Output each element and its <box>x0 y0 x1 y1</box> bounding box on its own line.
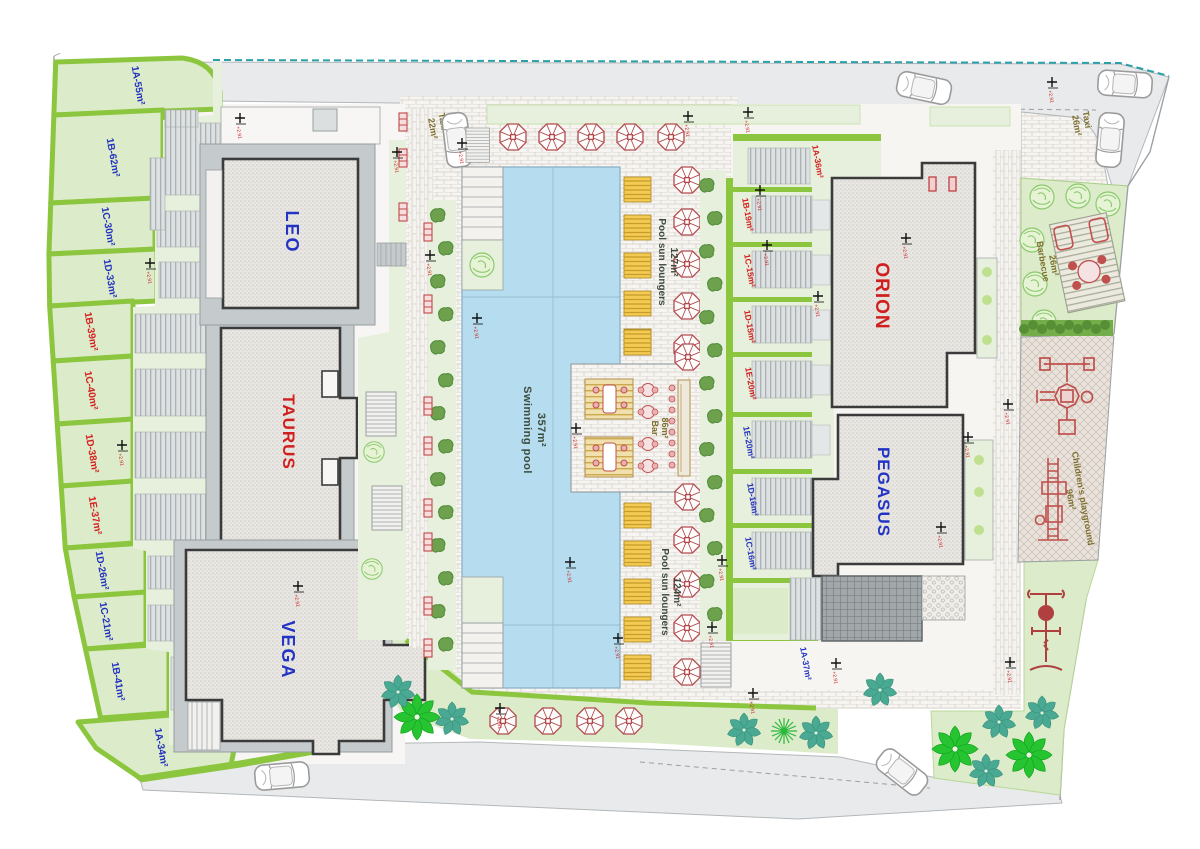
svg-text:86m²: 86m² <box>660 417 670 438</box>
svg-text:TAURUS: TAURUS <box>279 394 298 470</box>
svg-text:PEGASUS: PEGASUS <box>874 447 893 537</box>
svg-text:357m²: 357m² <box>535 413 547 447</box>
svg-text:Pool sun loungers: Pool sun loungers <box>656 218 667 306</box>
svg-text:127m²: 127m² <box>668 248 679 278</box>
svg-text:Swimming pool: Swimming pool <box>521 386 533 474</box>
svg-text:ORION: ORION <box>871 262 892 329</box>
svg-text:124m²: 124m² <box>671 578 682 608</box>
svg-text:Bar: Bar <box>650 420 660 436</box>
svg-text:VEGA: VEGA <box>278 620 298 679</box>
svg-text:Pool sun loungers: Pool sun loungers <box>659 548 670 636</box>
svg-text:LEO: LEO <box>282 210 302 253</box>
